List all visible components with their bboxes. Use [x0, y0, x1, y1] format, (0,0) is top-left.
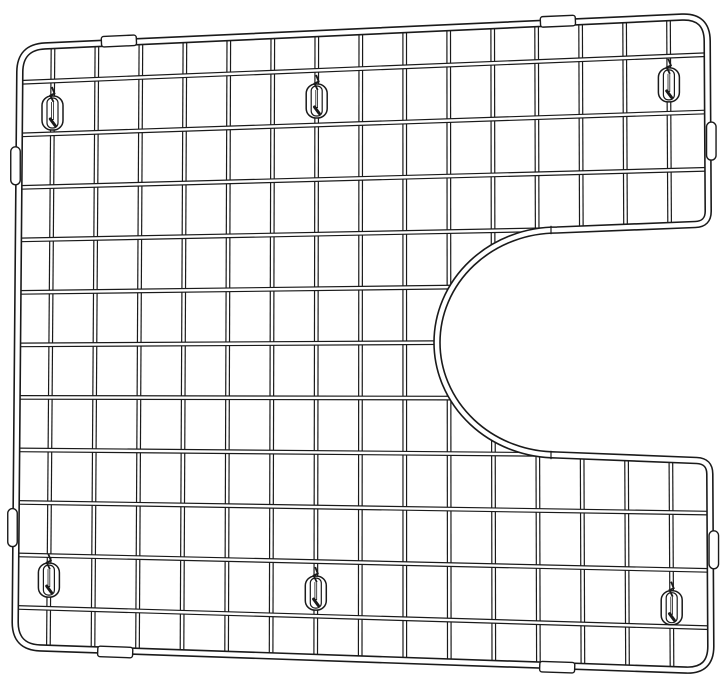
side-bumper-body [11, 147, 21, 185]
horizontal-wire-core [21, 55, 706, 83]
horizontal-wire-core [19, 284, 707, 293]
edge-tab-body [101, 35, 136, 47]
side-bumper-body [709, 531, 719, 569]
edge-tab [98, 646, 133, 658]
side-bumper [8, 509, 18, 547]
side-bumper [11, 147, 21, 185]
horizontal-wire-core [17, 607, 710, 627]
horizontal-wire-core [20, 169, 706, 187]
edge-tab [540, 661, 575, 673]
edge-tab-body [540, 661, 575, 673]
side-bumper-body [707, 122, 717, 160]
edge-tab [540, 15, 575, 27]
horizontal-wire-core [18, 502, 709, 513]
edge-tab-body [98, 646, 133, 658]
side-bumper-body [8, 509, 18, 547]
side-bumper [709, 531, 719, 569]
horizontal-wire-core [21, 112, 707, 135]
edge-tab-body [540, 15, 575, 27]
product-drawing-canvas [0, 0, 724, 692]
grid-wires [17, 19, 710, 668]
sink-grid-line-art [0, 0, 724, 692]
edge-tab [101, 35, 136, 47]
side-bumper [707, 122, 717, 160]
horizontal-wire-core [19, 397, 709, 398]
horizontal-wire-core [17, 555, 709, 571]
